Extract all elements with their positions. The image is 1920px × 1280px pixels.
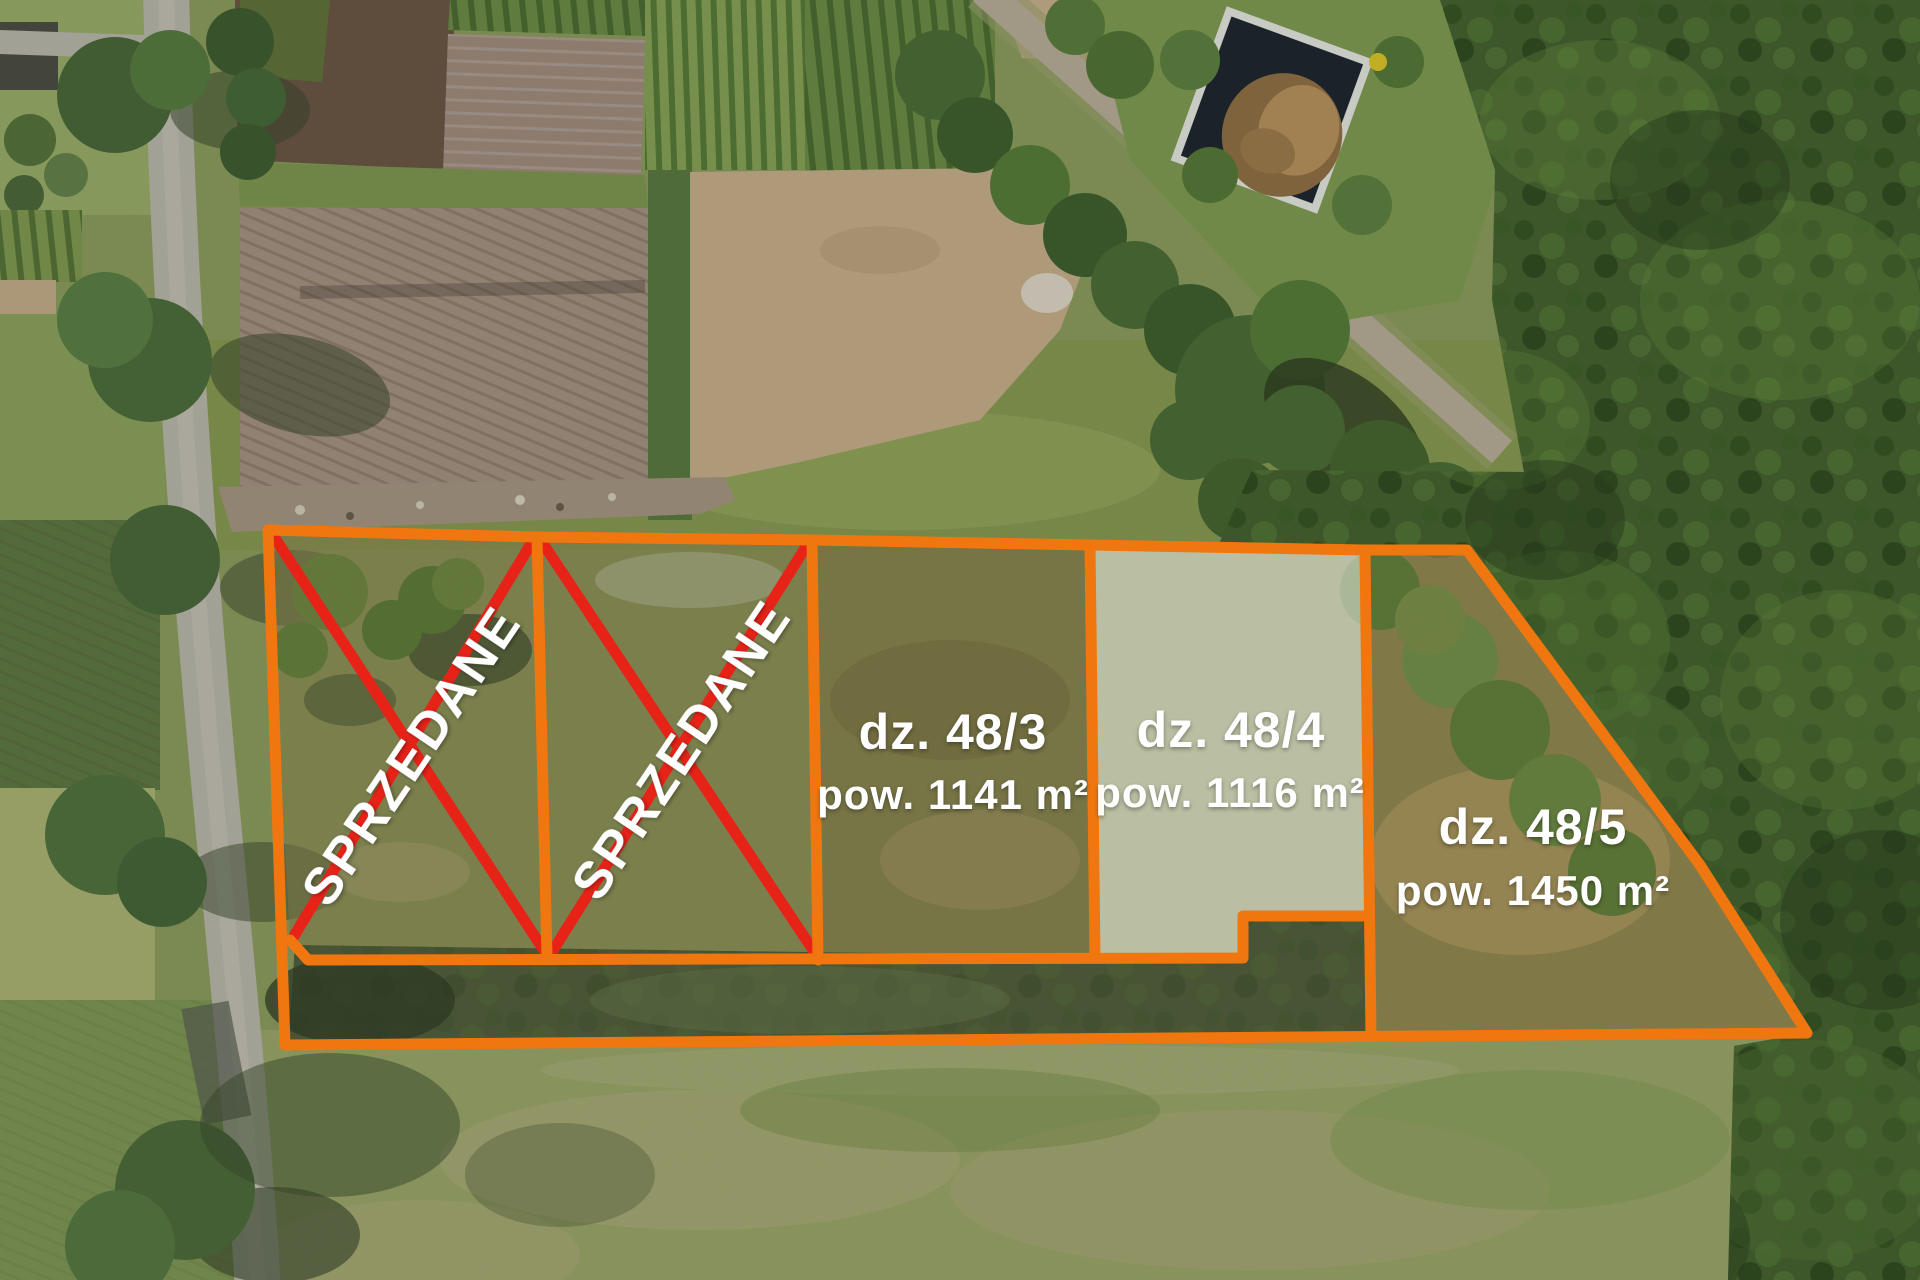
plot-3-parcel-label: dz. 48/3 [859, 704, 1048, 760]
divider-plot-4-5 [1365, 550, 1371, 1035]
photo-grain [0, 0, 1920, 1280]
divider-plot-3-4 [1090, 545, 1095, 958]
plot-5-area-label: pow. 1450 m² [1396, 867, 1670, 914]
plot-5-parcel-label: dz. 48/5 [1439, 799, 1628, 855]
plot-4-area-label: pow. 1116 m² [1095, 769, 1365, 816]
plot-4-parcel-label: dz. 48/4 [1137, 702, 1326, 758]
divider-plot-2-3 [812, 540, 818, 960]
plot-3-area-label: pow. 1141 m² [817, 771, 1089, 818]
aerial-photo: SPRZEDANE SPRZEDANE dz. 48/3 pow. 1141 m… [0, 0, 1920, 1280]
